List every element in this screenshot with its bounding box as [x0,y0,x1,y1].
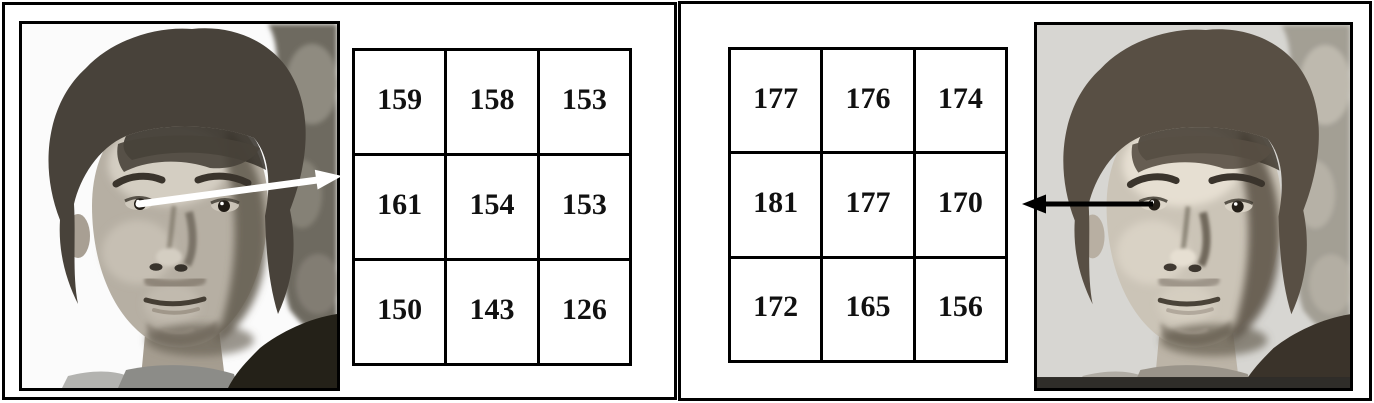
pixel-value-cell: 156 [916,259,1005,360]
pixel-value-cell: 170 [916,154,1005,255]
right-pixel-value-grid: 177 176 174 181 177 170 172 165 156 [728,47,1008,363]
pixel-value-cell: 150 [355,261,444,363]
left-face-photo [19,21,340,391]
pixel-value-cell: 165 [823,259,912,360]
pixel-value-cell: 176 [823,50,912,151]
face-photo-illustration [22,24,337,388]
right-panel: 177 176 174 181 177 170 172 165 156 [678,1,1372,401]
left-pixel-value-grid: 159 158 153 161 154 153 150 143 126 [352,48,632,366]
pixel-value-cell: 126 [540,261,629,363]
face-photo-illustration [1037,25,1350,388]
figure-canvas: 159 158 153 161 154 153 150 143 126 177 … [0,0,1374,403]
pixel-value-cell: 181 [731,154,820,255]
right-face-photo [1034,22,1353,391]
left-panel: 159 158 153 161 154 153 150 143 126 [2,2,677,400]
pixel-value-cell: 172 [731,259,820,360]
pixel-value-cell: 143 [447,261,536,363]
pixel-value-cell: 158 [447,51,536,153]
pixel-value-cell: 177 [823,154,912,255]
pixel-value-cell: 154 [447,156,536,258]
pixel-value-cell: 153 [540,51,629,153]
pixel-value-cell: 177 [731,50,820,151]
pixel-value-cell: 161 [355,156,444,258]
pixel-value-cell: 159 [355,51,444,153]
pixel-value-cell: 153 [540,156,629,258]
pixel-value-cell: 174 [916,50,1005,151]
